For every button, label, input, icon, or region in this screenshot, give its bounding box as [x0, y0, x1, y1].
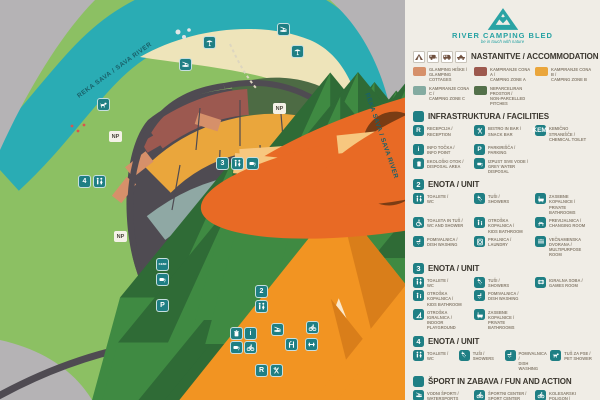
color-swatch	[413, 86, 426, 95]
legend-item: TUŠI /SHOWERS	[474, 193, 531, 214]
section-unit-4: 4 ENOTA / UNIT TOALETE /WC	[413, 336, 592, 371]
section-facilities: INFRASTRUKTURA / FACILITIES R RECEPCIJA …	[413, 111, 592, 174]
parking-icon: P	[156, 299, 169, 312]
legend-item: TOALETE /WC	[413, 350, 455, 371]
dish-washing-icon	[413, 236, 424, 247]
info-icon: i	[244, 327, 257, 340]
legend-item-label: KAMPIRANJE CONA A /CAMPING ZONE A	[490, 66, 531, 82]
legend-item: OTROŠKA IGRALNICA /INDOOR PLAYGROUND	[413, 309, 470, 330]
legend-item: TOALETE /WC	[413, 277, 470, 288]
dish-washing-icon	[505, 350, 516, 361]
section-title: ENOTA / UNIT	[428, 337, 479, 346]
section-bullet	[413, 376, 424, 387]
laundry-icon	[474, 236, 485, 247]
beach-umbrella-icon	[203, 36, 216, 49]
legend-item-label: BISTRO IN BAR /SNACK BAR	[488, 125, 521, 136]
watersports-icon	[277, 23, 290, 36]
color-swatch	[474, 67, 487, 76]
section-title: ŠPORT IN ZABAVA / FUN AND ACTION	[428, 377, 572, 386]
legend-item: TUŠI /SHOWERS	[459, 350, 501, 371]
legend-item: IGRALNA SOBA /GAMES ROOM	[535, 277, 592, 288]
camping-map-poster: 4 3 2	[0, 0, 600, 400]
np-label: NP	[273, 103, 286, 114]
legend-item-label: PRALNICA /LAUNDRY	[488, 236, 511, 247]
rooftop-tent-icon	[455, 51, 467, 63]
chemical-toilet-icon: KEMI	[535, 125, 546, 136]
unit-4-badge: 4	[413, 336, 424, 347]
legend-panel: RIVER CAMPING BLED be in touch with natu…	[405, 0, 600, 400]
caravan-icon	[427, 51, 439, 63]
legend-item-label: OTROŠKA KOPALNICA /KIDS BATHROOM	[488, 217, 531, 233]
grey-water-icon	[246, 157, 259, 170]
showers-icon	[474, 277, 485, 288]
logo-tagline: be in touch with nature	[413, 40, 592, 45]
np-label: NP	[114, 231, 127, 242]
legend-item: BISTRO IN BAR /SNACK BAR	[474, 125, 531, 141]
unit-2-badge: 2	[255, 285, 268, 298]
legend-item: OTROŠKA KOPALNICA /KIDS BATHROOM	[474, 217, 531, 233]
legend-item-label: TOALETE /WC	[427, 193, 448, 204]
legend-item: GLAMPING HIŠKE /GLAMPING COTTAGES	[413, 66, 470, 82]
disposal-icon	[230, 327, 243, 340]
legend-item: KOLESARSKI POLIGON /PUMPTRACK	[535, 390, 592, 400]
adventure-playground-icon	[285, 338, 298, 351]
legend-item-label: GLAMPING HIŠKE /GLAMPING COTTAGES	[429, 66, 470, 82]
legend-item: PRALNICA /LAUNDRY	[474, 236, 531, 257]
games-room-icon	[535, 277, 546, 288]
legend-item-label: INFO TOČKA /INFO POINT	[427, 144, 455, 155]
legend-item-label: POMIVALNICA /DISH WASHING	[427, 236, 457, 247]
legend-item-label: ZASEBNE KOPALNICE /PRIVATE BATHROOMS	[549, 193, 592, 214]
legend-item-label: TUŠI /SHOWERS	[473, 350, 494, 361]
legend-item-label: OTROŠKA KOPALNICA /KIDS BATHROOM	[427, 290, 470, 306]
legend-item: PREVIJALNICA /CHANGING ROOM	[535, 217, 592, 233]
section-unit-2: 2 ENOTA / UNIT TOALETE /WC	[413, 179, 592, 257]
unit-4-items: TOALETE /WC TUŠI /SHOWERS POMIVALNICA /D…	[413, 350, 592, 371]
legend-item: POMIVALNICA /DISH WASHING	[413, 236, 470, 257]
snack-bar-icon	[474, 125, 485, 136]
kayak-storage-icon	[271, 323, 284, 336]
legend-item: KEMI KEMIČNO STRANIŠČE /CHEMICAL TOILET	[535, 125, 592, 141]
logo-mountain-icon	[487, 7, 519, 31]
wc-icon	[255, 300, 268, 313]
accommodation-type-icons	[413, 51, 467, 63]
section-unit-3: 3 ENOTA / UNIT TOALETE /WC	[413, 263, 592, 331]
boat-rental-icon	[179, 58, 192, 71]
sport-center-icon	[474, 390, 485, 400]
legend-item-label: TUŠI /SHOWERS	[488, 193, 509, 204]
legend-item: ŠPORTNI CENTER /SPORT CENTER	[474, 390, 531, 400]
section-bullet	[413, 111, 424, 122]
pumptrack-icon	[306, 321, 319, 334]
wc-icon	[413, 277, 424, 288]
color-swatch	[535, 67, 548, 76]
section-title: ENOTA / UNIT	[428, 180, 479, 189]
bike-rental-icon	[244, 341, 257, 354]
legend-item: IZPUST SIVE VODE /GREY WATER DISPOSAL	[474, 158, 531, 174]
chemical-toilet-icon: KEMI	[156, 258, 169, 271]
multipurpose-room-icon	[535, 236, 546, 247]
parking-icon: P	[474, 144, 485, 155]
legend-item: ZASEBNE KOPALNICE /PRIVATE BATHROOMS	[535, 193, 592, 214]
showers-icon	[459, 350, 470, 361]
legend-item-label: PREVIJALNICA /CHANGING ROOM	[549, 217, 585, 228]
legend-item: KAMPIRANJE CONA B /CAMPING ZONE B	[535, 66, 592, 82]
legend-item: TOALETA IN TUŠ /WC AND SHOWER	[413, 217, 470, 233]
beach-umbrella-icon	[291, 45, 304, 58]
tent-icon	[413, 51, 425, 63]
map-terrain	[0, 0, 405, 400]
legend-item-label: KAMPIRANJE CONA B /CAMPING ZONE B	[551, 66, 592, 82]
private-bathrooms-icon	[535, 193, 546, 204]
indoor-playground-icon	[413, 309, 424, 320]
unit-3-items: TOALETE /WC OTROŠKA KOPALNICA /KIDS BATH…	[413, 277, 592, 331]
legend-item-label: OTROŠKA IGRALNICA /INDOOR PLAYGROUND	[427, 309, 470, 330]
legend-item-label: VODNI ŠPORTI /WATERSPORTS	[427, 390, 459, 400]
legend-item: i INFO TOČKA /INFO POINT	[413, 144, 470, 155]
watersports-icon	[413, 390, 424, 400]
unit-4-badge: 4	[78, 175, 91, 188]
private-bathrooms-icon	[474, 309, 485, 320]
pet-shower-icon	[550, 350, 561, 361]
legend-item: TUŠI /SHOWERS	[474, 277, 531, 288]
legend-item-label: POMIVALNICA /DISH WASHING	[488, 290, 518, 301]
snack-bar-icon	[270, 364, 283, 377]
legend-item-label: ZASEBNE KOPALNICE /PRIVATE BATHROOMS	[488, 309, 531, 330]
logo: RIVER CAMPING BLED be in touch with natu…	[413, 5, 592, 46]
disposal-icon	[413, 158, 424, 169]
legend-item-label: PARKIRIŠČA /PARKING	[488, 144, 515, 155]
section-sport: ŠPORT IN ZABAVA / FUN AND ACTION VODNI Š…	[413, 376, 592, 400]
legend-item: EKOLOŠKI OTOK /DISPOSAL AREA	[413, 158, 470, 174]
unit-2-items: TOALETE /WC TOALETA IN TUŠ /WC AND SHOWE…	[413, 193, 592, 257]
unit-3-badge: 3	[413, 263, 424, 274]
section-title: INFRASTRUKTURA / FACILITIES	[428, 112, 549, 121]
legend-item: POMIVALNICA /DISH WASHING	[474, 290, 531, 306]
wc-icon	[231, 157, 244, 170]
kids-bathroom-icon	[413, 290, 424, 301]
legend-item: KAMPIRANJE CONA C /CAMPING ZONE C	[413, 85, 470, 106]
legend-item-label: RECEPCIJA /RECEPTION	[427, 125, 453, 136]
info-icon: i	[413, 144, 424, 155]
grey-water-icon	[230, 341, 243, 354]
dish-washing-icon	[474, 290, 485, 301]
pumptrack-icon	[535, 390, 546, 400]
legend-item-label: VEČNAMENSKA DVORANA /MULTIPURPOSE ROOM	[549, 236, 592, 257]
legend-item: R RECEPCIJA /RECEPTION	[413, 125, 470, 141]
legend-item-label: TUŠ ZA PSE /PET SHOWER	[564, 350, 592, 361]
changing-room-icon	[535, 217, 546, 228]
legend-item: P PARKIRIŠČA /PARKING	[474, 144, 531, 155]
legend-item: POMIVALNICA /DISH WASHING	[505, 350, 547, 371]
legend-item-label: TOALETE /WC	[427, 277, 448, 288]
legend-item: TUŠ ZA PSE /PET SHOWER	[550, 350, 592, 371]
legend-item: VEČNAMENSKA DVORANA /MULTIPURPOSE ROOM	[535, 236, 592, 257]
legend-item-label: TOALETA IN TUŠ /WC AND SHOWER	[427, 217, 463, 228]
legend-item: VODNI ŠPORTI /WATERSPORTS	[413, 390, 470, 400]
unit-3-badge: 3	[216, 157, 229, 170]
legend-item-label: IGRALNA SOBA /GAMES ROOM	[549, 277, 583, 288]
legend-item-label: KEMIČNO STRANIŠČE /CHEMICAL TOILET	[549, 125, 592, 141]
grey-water-icon	[474, 158, 485, 169]
accommodation-items: GLAMPING HIŠKE /GLAMPING COTTAGES KAMPIR…	[413, 66, 592, 107]
section-title: NASTANITVE / ACCOMMODATION	[471, 52, 598, 61]
legend-item-label: NEPARCELIRAN PROSTOR /NON-PARCELLED PITC…	[490, 85, 531, 106]
dog-area-icon	[97, 98, 110, 111]
campsite-map: 4 3 2	[0, 0, 405, 400]
wc-shower-accessible-icon	[413, 217, 424, 228]
np-label: NP	[109, 131, 122, 142]
showers-icon	[474, 193, 485, 204]
legend-item: TOALETE /WC	[413, 193, 470, 214]
reception-icon: R	[255, 364, 268, 377]
legend-item-label: POMIVALNICA /DISH WASHING	[519, 350, 547, 371]
legend-item: OTROŠKA KOPALNICA /KIDS BATHROOM	[413, 290, 470, 306]
legend-item-label: ŠPORTNI CENTER /SPORT CENTER	[488, 390, 526, 400]
section-accommodation: NASTANITVE / ACCOMMODATION GLAMPING HIŠK…	[413, 51, 592, 107]
section-title: ENOTA / UNIT	[428, 264, 479, 273]
color-swatch	[413, 67, 426, 76]
reception-icon: R	[413, 125, 424, 136]
wc-icon	[413, 193, 424, 204]
legend-item-label: KAMPIRANJE CONA C /CAMPING ZONE C	[429, 85, 470, 101]
legend-item: NEPARCELIRAN PROSTOR /NON-PARCELLED PITC…	[474, 85, 531, 106]
legend-item-label: KOLESARSKI POLIGON /PUMPTRACK	[549, 390, 592, 400]
legend-item-label: TOALETE /WC	[427, 350, 448, 361]
sport-items: VODNI ŠPORTI /WATERSPORTS PLAŽA /BEACH I…	[413, 390, 592, 400]
color-swatch	[474, 86, 487, 95]
facilities-items: R RECEPCIJA /RECEPTION i INFO TOČKA /INF…	[413, 125, 592, 174]
legend-item-label: TUŠI /SHOWERS	[488, 277, 509, 288]
legend-item-label: EKOLOŠKI OTOK /DISPOSAL AREA	[427, 158, 464, 169]
grey-water-icon	[156, 273, 169, 286]
camper-icon	[441, 51, 453, 63]
unit-2-badge: 2	[413, 179, 424, 190]
wc-icon	[413, 350, 424, 361]
legend-item: ZASEBNE KOPALNICE /PRIVATE BATHROOMS	[474, 309, 531, 330]
kids-bathroom-icon	[474, 217, 485, 228]
wc-icon	[93, 175, 106, 188]
outdoor-fitness-icon	[305, 338, 318, 351]
legend-item: KAMPIRANJE CONA A /CAMPING ZONE A	[474, 66, 531, 82]
legend-item-label: IZPUST SIVE VODE /GREY WATER DISPOSAL	[488, 158, 531, 174]
